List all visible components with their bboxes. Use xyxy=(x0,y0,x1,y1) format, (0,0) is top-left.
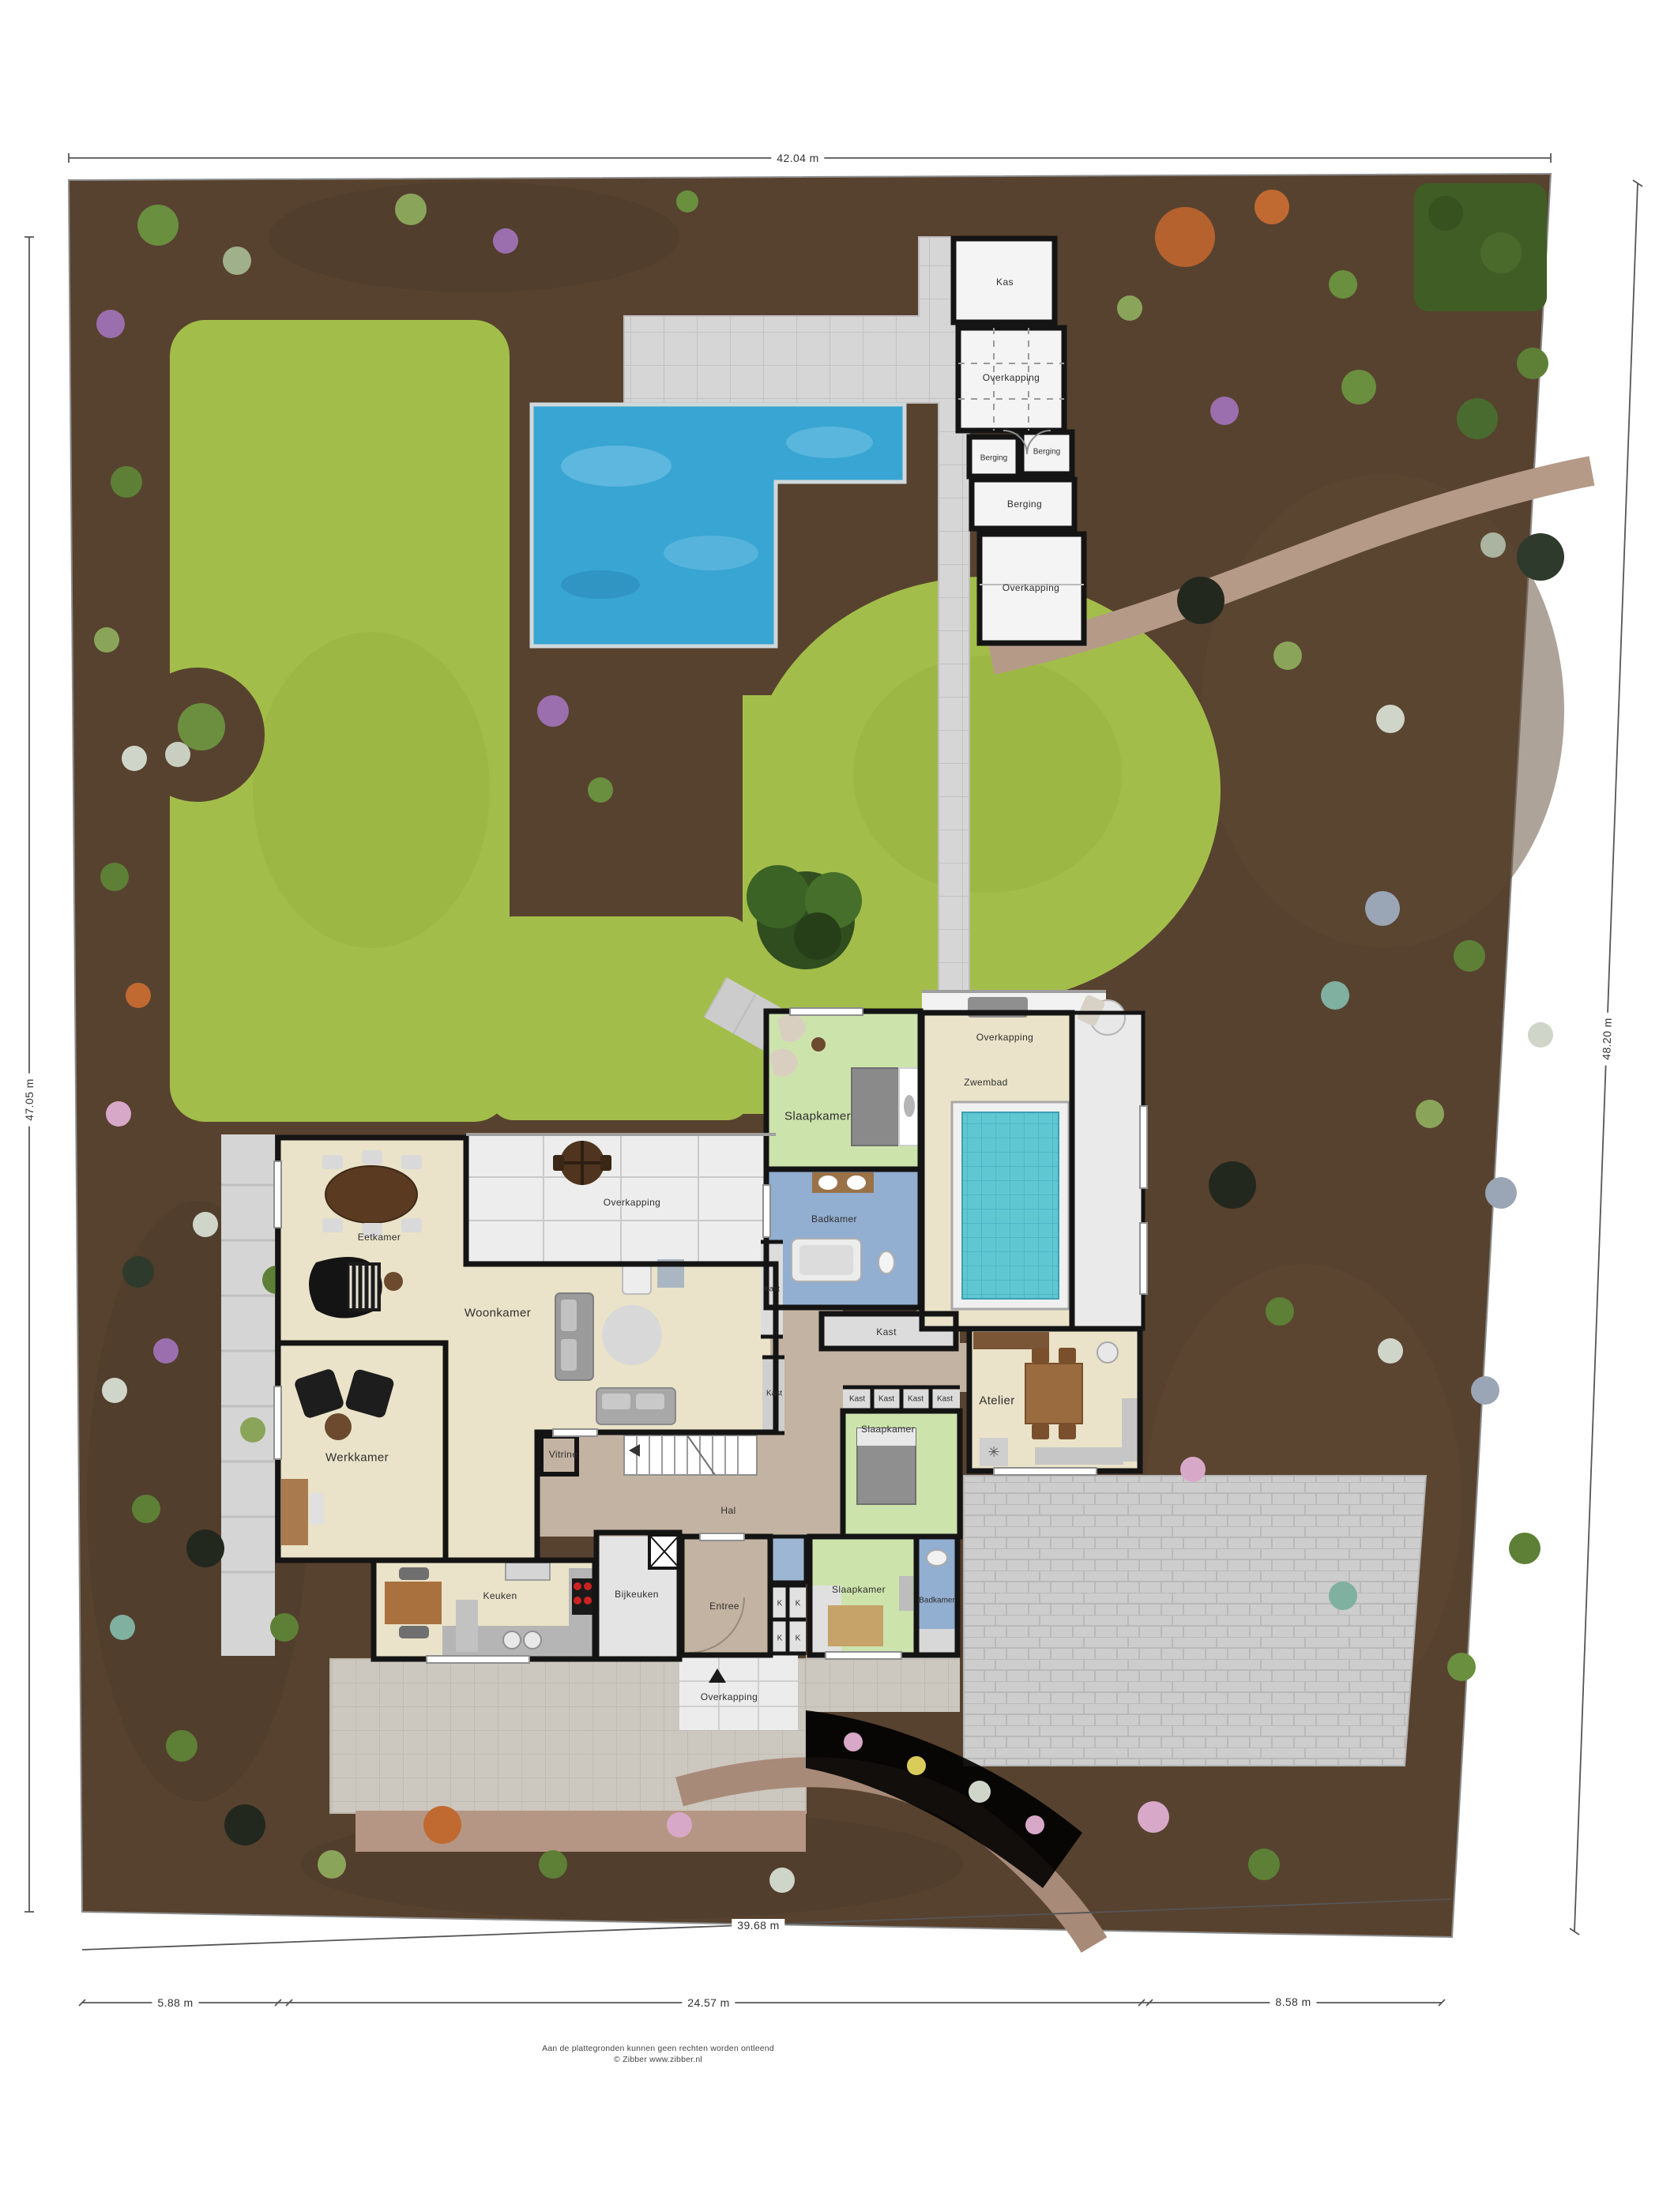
room-label-slaapkamer-bottom: Slaapkamer xyxy=(832,1584,886,1595)
room-label-berging-1: Berging xyxy=(980,454,1007,463)
room-label-overkapping-terras: Overkapping xyxy=(604,1197,660,1208)
room-label-hal: Hal xyxy=(720,1505,735,1516)
dimension-right: 48.20 m xyxy=(1600,1012,1614,1066)
closet-label-k-3: K xyxy=(777,1635,783,1643)
floorplan-page: { "site": { "dimensions": { "top": "42.0… xyxy=(0,0,1659,2212)
room-label-overkapping-pool: Overkapping xyxy=(976,1032,1033,1043)
dimension-segment-1: 5.88 m xyxy=(152,1996,198,2009)
footer-disclaimer: Aan de plattegronden kunnen geen rechten… xyxy=(542,2044,774,2053)
svg-text:✳: ✳ xyxy=(987,1444,999,1460)
room-label-keuken: Keuken xyxy=(483,1590,517,1601)
room-label-kast-wide: Kast xyxy=(876,1326,897,1337)
room-label-kast-v2: Kast xyxy=(766,1390,782,1398)
room-label-slaapkamer-mid: Slaapkamer xyxy=(861,1424,915,1435)
closet-label-k-4: K xyxy=(796,1635,801,1643)
room-label-slaapkamer-top: Slaapkamer xyxy=(784,1110,851,1123)
room-label-woonkamer: Woonkamer xyxy=(465,1307,531,1320)
closet-label-k-1: K xyxy=(777,1600,783,1608)
room-label-entree: Entree xyxy=(709,1601,739,1612)
closet-label-kast-4: Kast xyxy=(937,1395,953,1404)
room-label-overkapping-mid: Overkapping xyxy=(1003,582,1059,593)
footer-copyright: © Zibber www.zibber.nl xyxy=(614,2055,702,2064)
dimension-top: 42.04 m xyxy=(771,152,824,164)
room-label-vitrine: Vitrine xyxy=(549,1449,578,1460)
room-label-atelier: Atelier xyxy=(979,1394,1014,1408)
room-label-berging-2: Berging xyxy=(1033,448,1060,457)
dimension-segment-3: 8.58 m xyxy=(1270,1996,1316,2008)
closet-label-k-2: K xyxy=(796,1600,801,1608)
room-label-badkamer-bottom: Badkamer xyxy=(919,1597,955,1605)
site-plan-canvas: ✳ xyxy=(0,0,1659,2212)
room-label-kast-v1: Kast xyxy=(764,1285,780,1294)
dimension-left: 47.05 m xyxy=(23,1073,36,1126)
room-label-eetkamer: Eetkamer xyxy=(358,1232,401,1243)
room-label-berging-3: Berging xyxy=(1007,498,1042,510)
room-label-werkkamer: Werkkamer xyxy=(325,1451,389,1465)
closet-label-kast-2: Kast xyxy=(878,1395,894,1404)
room-label-badkamer-top: Badkamer xyxy=(811,1213,857,1224)
closet-label-kast-1: Kast xyxy=(849,1395,865,1404)
room-label-bijkeuken: Bijkeuken xyxy=(615,1589,659,1600)
hedge xyxy=(1414,183,1547,311)
room-label-zwembad: Zwembad xyxy=(964,1077,1008,1088)
dimension-bottom-total: 39.68 m xyxy=(732,1919,784,1932)
dimension-segment-2: 24.57 m xyxy=(682,1996,735,2009)
closet-label-kast-3: Kast xyxy=(908,1395,924,1404)
room-label-kas: Kas xyxy=(996,276,1014,288)
room-label-overkapping-top: Overkapping xyxy=(983,372,1040,383)
room-label-overkapping-porch: Overkapping xyxy=(701,1691,758,1702)
